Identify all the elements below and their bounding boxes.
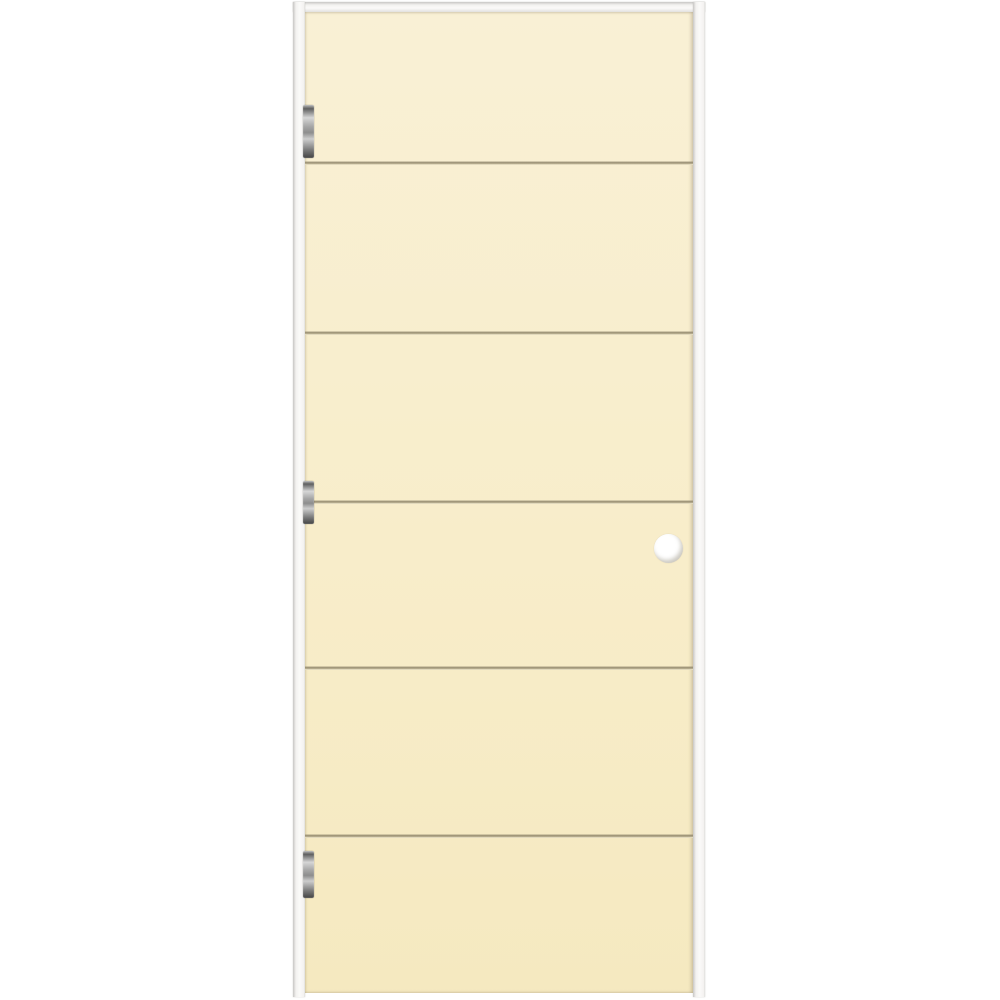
door-hinge-bottom <box>303 851 314 898</box>
door-slab <box>305 12 693 993</box>
door-groove <box>305 331 693 335</box>
door-groove <box>305 666 693 670</box>
door-knob-bore-hole <box>654 534 683 563</box>
door-groove <box>305 161 693 165</box>
door-frame-right-jamb <box>693 2 705 997</box>
door-hinge-middle <box>303 481 314 524</box>
product-photo-door <box>0 0 1000 1000</box>
door-groove <box>305 834 693 838</box>
door-hinge-top <box>303 105 314 158</box>
door-groove <box>305 500 693 504</box>
door-frame-head-jamb <box>293 2 705 12</box>
